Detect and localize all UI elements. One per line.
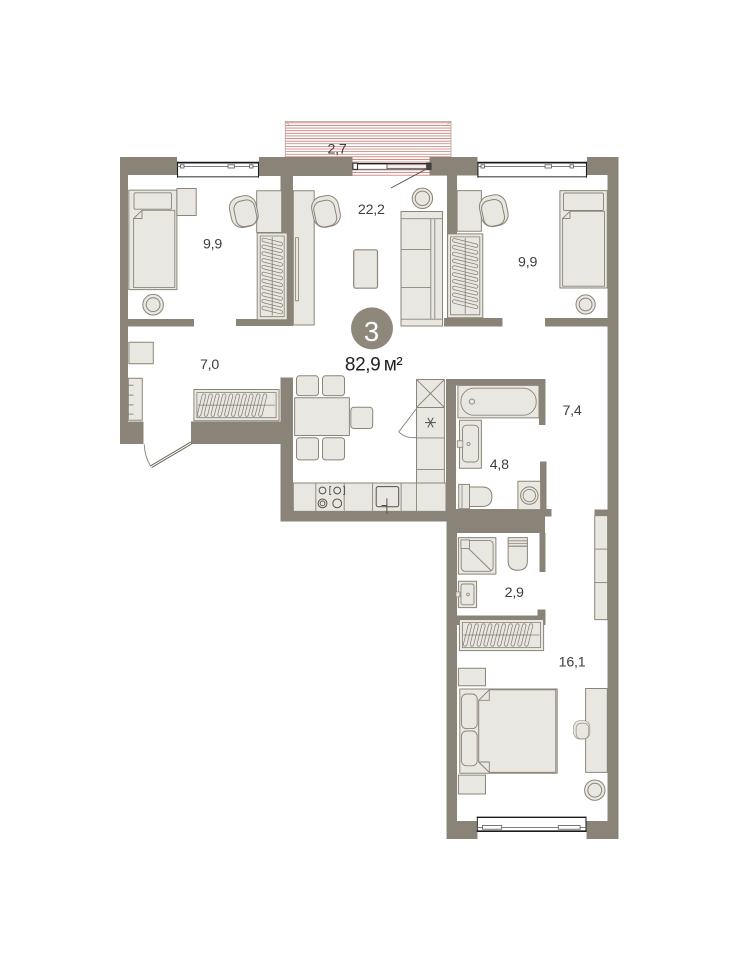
svg-text:9,9: 9,9 — [518, 254, 537, 270]
svg-text:7,0: 7,0 — [200, 357, 219, 373]
svg-text:4,8: 4,8 — [490, 457, 509, 473]
svg-text:2,7: 2,7 — [327, 142, 346, 158]
svg-text:7,4: 7,4 — [562, 403, 581, 419]
svg-text:3: 3 — [364, 316, 379, 347]
svg-text:22,2: 22,2 — [358, 202, 385, 218]
svg-text:16,1: 16,1 — [559, 655, 586, 671]
svg-text:2,9: 2,9 — [505, 585, 524, 601]
svg-text:82,9 м²: 82,9 м² — [345, 354, 402, 375]
svg-text:9,9: 9,9 — [203, 237, 222, 253]
